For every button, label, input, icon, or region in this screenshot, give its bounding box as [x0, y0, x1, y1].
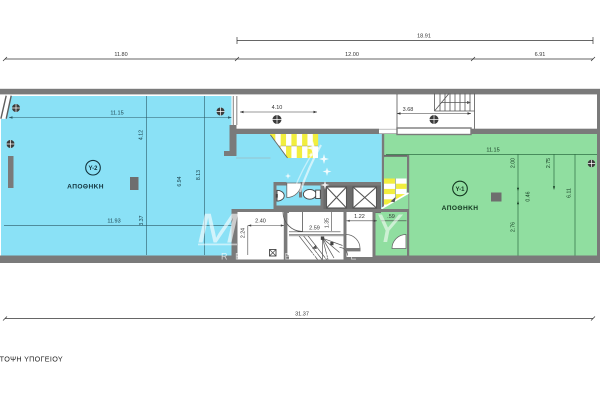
svg-text:2.76: 2.76 [511, 222, 517, 232]
svg-text:2.59: 2.59 [309, 226, 320, 232]
svg-text:3.68: 3.68 [403, 107, 414, 113]
svg-text:6.11: 6.11 [567, 188, 573, 198]
svg-text:11.93: 11.93 [107, 219, 120, 225]
svg-text:ΚΑΤΟΨΗ ΥΠΟΓΕΙΟΥ: ΚΑΤΟΨΗ ΥΠΟΓΕΙΟΥ [0, 355, 63, 364]
svg-text:3.37: 3.37 [139, 215, 145, 225]
svg-text:1.22: 1.22 [354, 214, 365, 220]
svg-text:ΑΠΟΘΗΚΗ: ΑΠΟΘΗΚΗ [442, 205, 479, 212]
svg-text:2.00: 2.00 [511, 158, 517, 168]
svg-text:12.00: 12.00 [345, 52, 359, 58]
svg-text:6.91: 6.91 [535, 52, 546, 58]
svg-text:1.35: 1.35 [325, 218, 331, 228]
svg-text:6.94: 6.94 [177, 176, 183, 186]
svg-text:Y-2: Y-2 [88, 166, 98, 172]
svg-text:31.37: 31.37 [295, 312, 309, 318]
svg-text:4.12: 4.12 [139, 130, 145, 140]
svg-text:4.10: 4.10 [272, 105, 283, 111]
svg-text:2.75: 2.75 [546, 158, 552, 168]
svg-text:Y-1: Y-1 [455, 187, 465, 193]
svg-text:2.24: 2.24 [241, 228, 247, 238]
svg-text:Y: Y [374, 207, 404, 251]
svg-text:ΑΠΟΘΗΚΗ: ΑΠΟΘΗΚΗ [67, 184, 104, 191]
svg-text:2.40: 2.40 [255, 219, 266, 225]
svg-text:0.46: 0.46 [526, 191, 532, 201]
svg-text:11.15: 11.15 [110, 111, 123, 117]
svg-text:11.80: 11.80 [114, 52, 127, 58]
svg-text:REAL ESTATE: REAL ESTATE [221, 252, 364, 262]
svg-text:18.91: 18.91 [417, 34, 431, 40]
svg-text:8.13: 8.13 [196, 170, 202, 180]
svg-text:11.15: 11.15 [486, 148, 499, 154]
